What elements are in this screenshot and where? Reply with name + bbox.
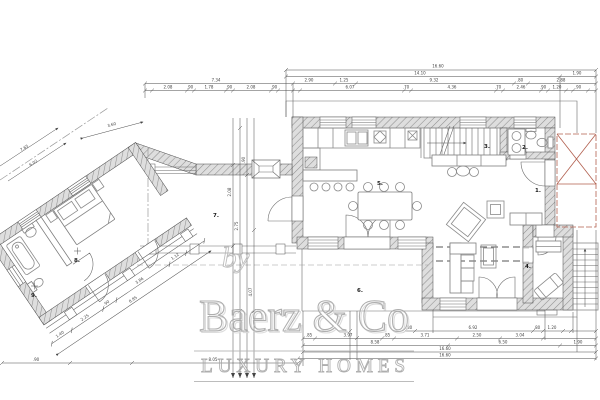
- dim-label: .90: [575, 84, 582, 89]
- dim-label: 16.60: [432, 64, 444, 69]
- floorplan-page: 16.60 14.10 1.90 7.34 2.90 1.25 9.32 .80…: [0, 0, 600, 400]
- dim-label: 2.08: [227, 187, 232, 196]
- bedroom-wing: 1.40 2.25 .90 3.86 1.12 8.85: [0, 140, 213, 355]
- dim-label: 1.40: [55, 329, 66, 338]
- dim-label: 2.75: [234, 221, 239, 230]
- dim-label: .70: [495, 84, 502, 89]
- dim-label: 2.88: [557, 77, 566, 82]
- room-label-bedroom: 8.: [74, 258, 80, 264]
- living-room: [436, 201, 521, 293]
- dim-label: 6.92: [469, 325, 478, 330]
- watermark-by: by: [222, 242, 250, 274]
- dim-label: 3.71: [421, 332, 430, 337]
- dim-label: 2.25: [80, 313, 91, 322]
- dim-label: 14.10: [414, 70, 426, 75]
- dim-label: .80: [517, 77, 524, 82]
- hall-closets: [510, 213, 542, 225]
- room-label-stairs: 3.: [484, 144, 490, 150]
- kitchen-area: [303, 128, 420, 191]
- dim-label: 6.50: [499, 339, 508, 344]
- dim-label: 2.50: [473, 332, 482, 337]
- dim-label: 16.60: [439, 346, 451, 351]
- dim-label: 7.65: [19, 143, 30, 152]
- dim-label: 8.85: [128, 295, 139, 304]
- room-label-hall: 1.: [535, 188, 541, 194]
- internal-stairs: [421, 126, 506, 177]
- dim-label: 1.90: [573, 70, 582, 75]
- dim-label: 1.20: [553, 84, 562, 89]
- dim-label: 3.04: [516, 332, 525, 337]
- dim-label: .90: [33, 357, 40, 362]
- dim-label: 1.78: [205, 84, 214, 89]
- dim-label: .90: [241, 156, 246, 163]
- dim-label: 2.08: [247, 84, 256, 89]
- dim-label: 2.08: [164, 84, 173, 89]
- dim-label: 9.32: [430, 77, 439, 82]
- room-label-dining: 5.: [377, 181, 383, 187]
- dim-label: .80: [534, 325, 541, 330]
- dim-label: 7.34: [212, 77, 221, 82]
- watermark-brand: Baerz & Co: [199, 290, 409, 341]
- watermark: by Baerz & Co Baerz & Co LUXURY HOMES: [194, 242, 414, 382]
- dim-label: 2.90: [305, 77, 314, 82]
- site-boundary-and-dims: 7.65 6.02 3.60: [0, 108, 143, 181]
- dim-label: 4.36: [448, 84, 457, 89]
- watermark-tagline: LUXURY HOMES: [201, 355, 410, 377]
- dim-label: .70: [403, 84, 410, 89]
- dim-label: 6.07: [346, 84, 355, 89]
- room-label-wc: 2.: [522, 145, 528, 151]
- dining-table-set: [349, 183, 422, 230]
- study-room: [534, 241, 564, 301]
- dim-label: .90: [271, 84, 278, 89]
- dim-label: 2.46: [517, 84, 526, 89]
- dim-label: .90: [540, 84, 547, 89]
- floorplan-drawing: 16.60 14.10 1.90 7.34 2.90 1.25 9.32 .80…: [0, 0, 600, 400]
- dim-label: 1.20: [548, 325, 557, 330]
- dim-label: .90: [187, 84, 194, 89]
- dim-label: 16.60: [439, 353, 451, 358]
- dim-label: .90: [102, 299, 110, 307]
- room-label-study: 4.: [525, 264, 531, 270]
- dim-label: 3.86: [134, 276, 145, 285]
- room-label-bathroom: 9.: [31, 293, 37, 299]
- dim-label: 1.25: [340, 77, 349, 82]
- dim-label: 1.90: [574, 339, 583, 344]
- room-label-patio: 7.: [213, 213, 219, 219]
- dim-label: .90: [226, 84, 233, 89]
- dim-label: 3.60: [107, 121, 117, 128]
- dim-label: 6.02: [28, 158, 39, 167]
